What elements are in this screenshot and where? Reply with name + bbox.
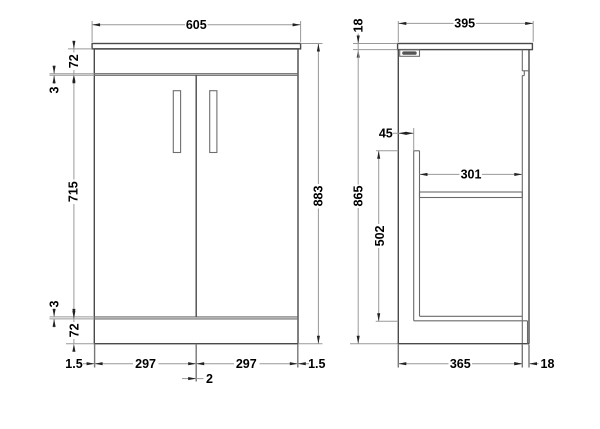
svg-text:18: 18 bbox=[352, 19, 366, 33]
svg-text:1.5: 1.5 bbox=[65, 357, 82, 371]
svg-text:2: 2 bbox=[206, 372, 213, 386]
svg-text:3: 3 bbox=[48, 300, 62, 307]
svg-text:605: 605 bbox=[186, 18, 207, 32]
svg-text:715: 715 bbox=[67, 181, 81, 202]
svg-text:18: 18 bbox=[541, 357, 555, 371]
svg-text:502: 502 bbox=[373, 225, 387, 246]
svg-text:865: 865 bbox=[351, 186, 365, 207]
svg-text:395: 395 bbox=[454, 17, 475, 31]
svg-text:301: 301 bbox=[461, 168, 482, 182]
svg-text:45: 45 bbox=[379, 127, 393, 141]
svg-text:883: 883 bbox=[312, 186, 326, 207]
svg-text:72: 72 bbox=[67, 323, 81, 337]
svg-text:297: 297 bbox=[236, 357, 257, 371]
svg-text:3: 3 bbox=[48, 86, 62, 93]
svg-text:365: 365 bbox=[450, 357, 471, 371]
svg-text:72: 72 bbox=[67, 54, 81, 68]
svg-text:297: 297 bbox=[135, 357, 156, 371]
svg-text:1.5: 1.5 bbox=[308, 357, 325, 371]
